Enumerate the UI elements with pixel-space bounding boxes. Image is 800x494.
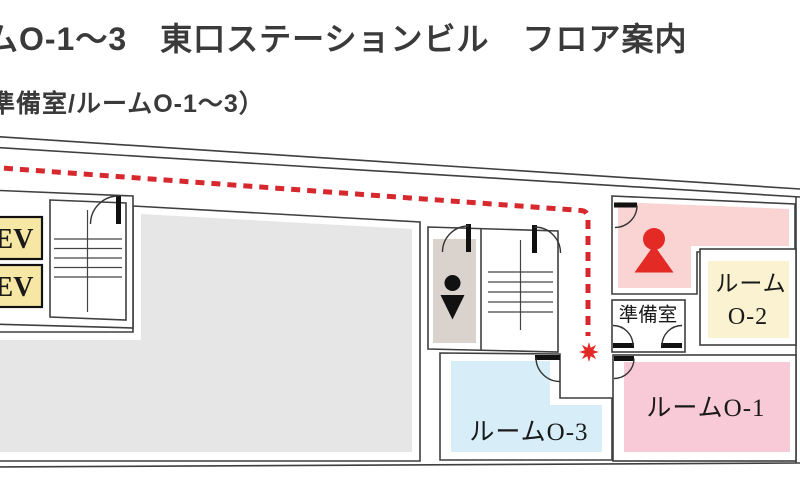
inner-wall-top bbox=[0, 147, 800, 197]
red-burst-star-icon bbox=[579, 342, 599, 362]
staircase-west bbox=[50, 196, 126, 320]
room-o2-label-line2: O-2 bbox=[728, 304, 768, 330]
elevator-1-label: EV bbox=[0, 224, 33, 255]
person-head bbox=[445, 275, 461, 291]
prep-room: 準備室 bbox=[612, 300, 685, 352]
floor-plan-svg: EV EV bbox=[0, 0, 800, 494]
room-o2-label-line1: ルーム bbox=[715, 271, 786, 296]
restroom bbox=[433, 239, 476, 343]
outer-wall-bottom bbox=[0, 463, 800, 467]
room-o1: ルームO-1 bbox=[613, 355, 796, 461]
room-o3: ルームO-3 bbox=[440, 353, 612, 460]
elevator-block: EV EV bbox=[0, 190, 133, 328]
restroom-stair-block bbox=[428, 224, 561, 352]
prep-room-label: 準備室 bbox=[619, 304, 678, 326]
elevator-2-label: EV bbox=[0, 272, 33, 303]
outer-wall-top bbox=[0, 136, 800, 189]
room-o2: ルーム O-2 bbox=[700, 249, 796, 345]
room-o3-label: ルームO-3 bbox=[469, 419, 588, 446]
room-o1-label: ルームO-1 bbox=[646, 395, 765, 422]
